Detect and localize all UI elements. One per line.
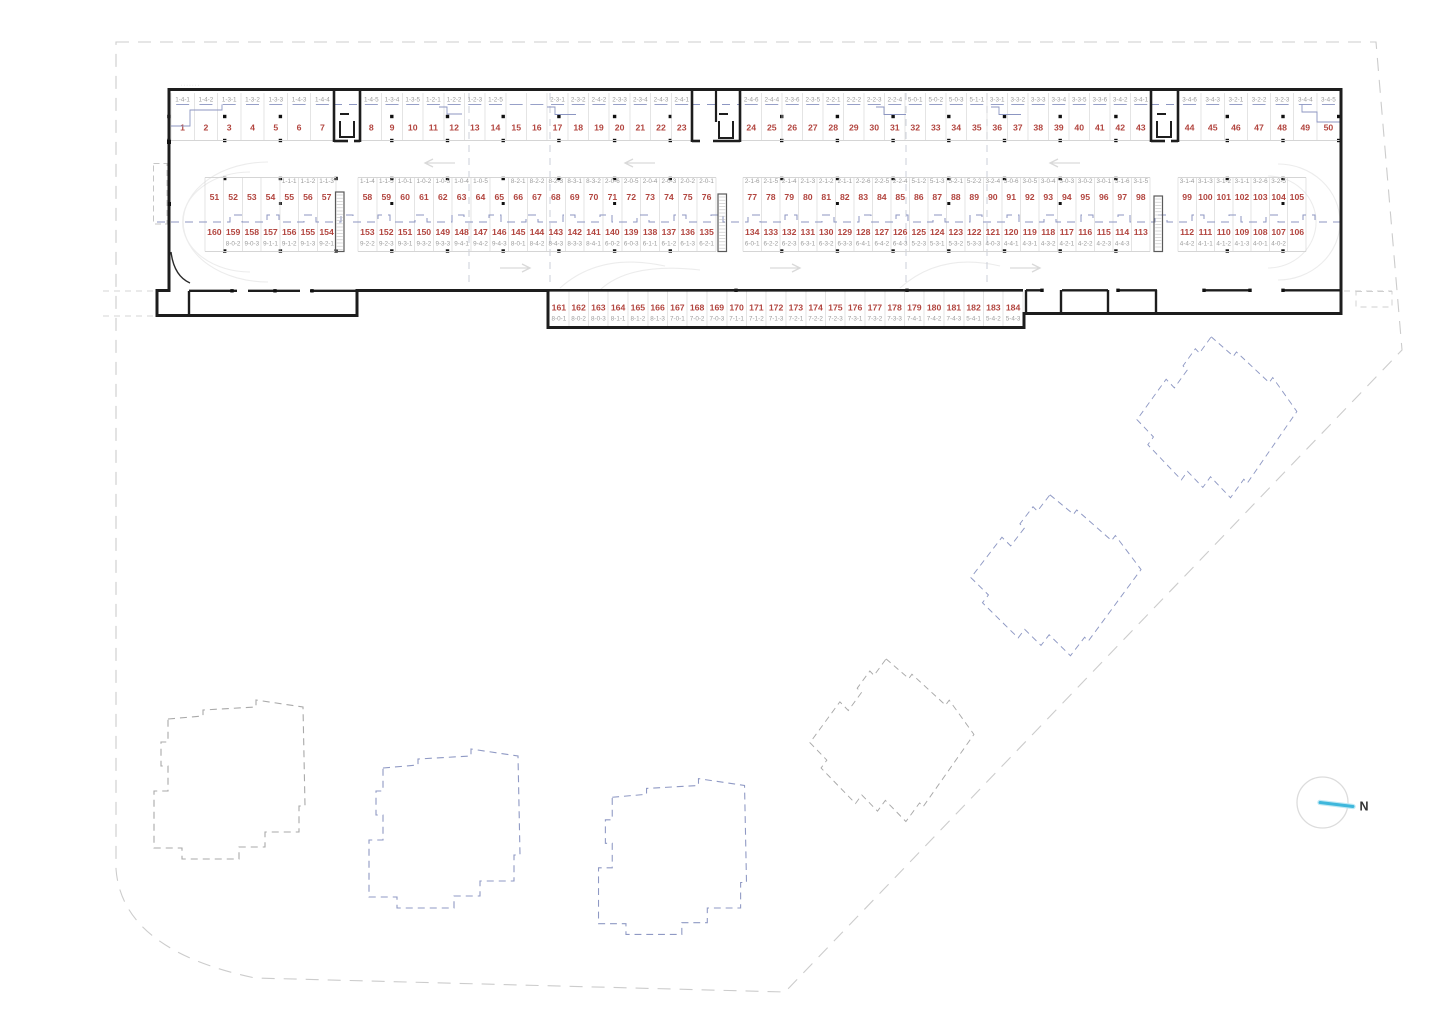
svg-text:1-0-3: 1-0-3	[435, 178, 450, 185]
svg-text:2-0-1: 2-0-1	[699, 178, 714, 185]
svg-text:1-2-1: 1-2-1	[426, 97, 441, 104]
svg-text:2: 2	[203, 123, 208, 133]
svg-text:143: 143	[549, 227, 564, 237]
svg-text:2-1-6: 2-1-6	[745, 178, 760, 185]
svg-text:77: 77	[747, 192, 757, 202]
svg-text:131: 131	[801, 227, 816, 237]
svg-text:1-4-5: 1-4-5	[364, 97, 379, 104]
svg-text:4-1-1: 4-1-1	[1198, 241, 1213, 248]
svg-text:62: 62	[438, 192, 448, 202]
svg-text:8-2-2: 8-2-2	[530, 178, 545, 185]
svg-text:5-2-1: 5-2-1	[948, 178, 963, 185]
svg-text:8-4-3: 8-4-3	[548, 241, 563, 248]
svg-text:168: 168	[690, 303, 705, 313]
svg-text:8-1-3: 8-1-3	[650, 316, 665, 323]
svg-text:1-1-2: 1-1-2	[301, 178, 316, 185]
svg-text:95: 95	[1080, 192, 1090, 202]
svg-text:7-2-3: 7-2-3	[828, 316, 843, 323]
svg-text:8-4-2: 8-4-2	[530, 241, 545, 248]
svg-text:6-1-1: 6-1-1	[643, 241, 658, 248]
svg-text:156: 156	[282, 227, 297, 237]
svg-text:2-1-5: 2-1-5	[763, 178, 778, 185]
svg-text:150: 150	[417, 227, 432, 237]
svg-text:176: 176	[848, 303, 863, 313]
svg-text:161: 161	[552, 303, 567, 313]
svg-text:4-4-3: 4-4-3	[1115, 241, 1130, 248]
svg-text:3-2-4: 3-2-4	[985, 178, 1000, 185]
svg-text:7-0-2: 7-0-2	[690, 316, 705, 323]
svg-text:1: 1	[180, 123, 185, 133]
svg-text:11: 11	[429, 123, 438, 133]
svg-text:139: 139	[624, 227, 639, 237]
svg-text:4-2-2: 4-2-2	[1078, 241, 1093, 248]
svg-text:N: N	[1359, 800, 1368, 814]
svg-text:7-0-1: 7-0-1	[670, 316, 685, 323]
svg-text:4-0-1: 4-0-1	[1253, 241, 1268, 248]
svg-text:3-0-4: 3-0-4	[1041, 178, 1056, 185]
svg-text:3-2-5: 3-2-5	[1271, 178, 1286, 185]
svg-text:6-3-2: 6-3-2	[819, 241, 834, 248]
svg-text:30: 30	[869, 123, 879, 133]
svg-text:63: 63	[457, 192, 467, 202]
svg-text:2-1-2: 2-1-2	[819, 178, 834, 185]
svg-text:1-0-5: 1-0-5	[473, 178, 488, 185]
svg-text:159: 159	[226, 227, 241, 237]
svg-text:6-2-1: 6-2-1	[699, 241, 714, 248]
svg-text:88: 88	[951, 192, 961, 202]
svg-text:2-1-1: 2-1-1	[837, 178, 852, 185]
svg-text:103: 103	[1253, 192, 1268, 202]
svg-text:1-3-1: 1-3-1	[222, 97, 237, 104]
svg-text:9-1-3: 9-1-3	[301, 241, 316, 248]
svg-text:179: 179	[907, 303, 922, 313]
svg-text:162: 162	[571, 303, 586, 313]
svg-text:7-3-1: 7-3-1	[848, 316, 863, 323]
svg-text:9-0-3: 9-0-3	[244, 241, 259, 248]
svg-text:121: 121	[986, 227, 1001, 237]
svg-text:65: 65	[494, 192, 504, 202]
svg-text:7-4-2: 7-4-2	[927, 316, 942, 323]
svg-text:9-3-3: 9-3-3	[435, 241, 450, 248]
svg-text:51: 51	[210, 192, 220, 202]
svg-text:12: 12	[449, 123, 459, 133]
svg-text:39: 39	[1054, 123, 1064, 133]
svg-text:3-4-2: 3-4-2	[1113, 97, 1128, 104]
svg-text:5-0-2: 5-0-2	[928, 97, 943, 104]
svg-text:101: 101	[1216, 192, 1231, 202]
svg-text:71: 71	[608, 192, 618, 202]
svg-text:3-0-5: 3-0-5	[1022, 178, 1037, 185]
svg-text:4-4-1: 4-4-1	[1004, 241, 1019, 248]
svg-text:94: 94	[1062, 192, 1072, 202]
svg-text:180: 180	[927, 303, 942, 313]
svg-text:85: 85	[895, 192, 905, 202]
svg-text:97: 97	[1117, 192, 1127, 202]
svg-text:151: 151	[398, 227, 413, 237]
svg-text:56: 56	[303, 192, 313, 202]
svg-text:175: 175	[828, 303, 843, 313]
svg-text:8-1-2: 8-1-2	[631, 316, 646, 323]
svg-text:107: 107	[1271, 227, 1286, 237]
svg-text:35: 35	[972, 123, 982, 133]
svg-text:2-3-3: 2-3-3	[612, 97, 627, 104]
svg-text:93: 93	[1043, 192, 1053, 202]
svg-text:58: 58	[363, 192, 373, 202]
svg-text:15: 15	[511, 123, 521, 133]
svg-text:46: 46	[1231, 123, 1241, 133]
svg-text:2-1-4: 2-1-4	[782, 178, 797, 185]
svg-text:96: 96	[1099, 192, 1109, 202]
svg-text:8-0-3: 8-0-3	[591, 316, 606, 323]
svg-text:141: 141	[586, 227, 601, 237]
svg-text:1-0-2: 1-0-2	[417, 178, 432, 185]
svg-text:2-2-4: 2-2-4	[887, 97, 902, 104]
svg-text:73: 73	[645, 192, 655, 202]
svg-text:110: 110	[1217, 227, 1231, 237]
svg-text:136: 136	[680, 227, 695, 237]
svg-text:16: 16	[532, 123, 542, 133]
svg-text:89: 89	[969, 192, 979, 202]
svg-text:27: 27	[808, 123, 818, 133]
svg-text:55: 55	[284, 192, 294, 202]
svg-text:119: 119	[1023, 227, 1037, 237]
svg-text:5-4-3: 5-4-3	[1006, 316, 1021, 323]
svg-text:36: 36	[992, 123, 1002, 133]
svg-text:125: 125	[912, 227, 927, 237]
svg-text:149: 149	[436, 227, 451, 237]
svg-text:82: 82	[840, 192, 850, 202]
svg-text:8: 8	[369, 123, 374, 133]
svg-text:81: 81	[821, 192, 831, 202]
svg-text:2-2-1: 2-2-1	[826, 97, 841, 104]
svg-text:173: 173	[789, 303, 804, 313]
svg-text:57: 57	[322, 192, 332, 202]
svg-text:129: 129	[838, 227, 853, 237]
svg-text:7-2-2: 7-2-2	[808, 316, 823, 323]
svg-text:5-3-1: 5-3-1	[930, 241, 945, 248]
svg-text:70: 70	[589, 192, 599, 202]
svg-text:49: 49	[1300, 123, 1310, 133]
svg-text:18: 18	[573, 123, 583, 133]
svg-text:8-0-1: 8-0-1	[511, 241, 526, 248]
svg-text:84: 84	[877, 192, 887, 202]
svg-text:1-0-4: 1-0-4	[454, 178, 469, 185]
svg-text:164: 164	[611, 303, 626, 313]
svg-text:1-4-1: 1-4-1	[175, 97, 190, 104]
svg-text:126: 126	[893, 227, 908, 237]
svg-text:3-1-2: 3-1-2	[1216, 178, 1231, 185]
svg-text:3-1-6: 3-1-6	[1115, 178, 1130, 185]
svg-text:1-4-4: 1-4-4	[315, 97, 330, 104]
svg-text:83: 83	[858, 192, 868, 202]
svg-text:152: 152	[379, 227, 394, 237]
svg-text:8-0-1: 8-0-1	[552, 316, 567, 323]
svg-text:6-2-2: 6-2-2	[763, 241, 778, 248]
svg-text:75: 75	[683, 192, 693, 202]
svg-text:2-4-4: 2-4-4	[764, 97, 779, 104]
svg-text:178: 178	[887, 303, 902, 313]
svg-text:115: 115	[1097, 227, 1111, 237]
svg-text:8-3-2: 8-3-2	[586, 178, 601, 185]
svg-text:21: 21	[635, 123, 645, 133]
svg-text:5-0-1: 5-0-1	[908, 97, 923, 104]
svg-text:2-2-6: 2-2-6	[856, 178, 871, 185]
svg-text:184: 184	[1006, 303, 1021, 313]
svg-text:133: 133	[764, 227, 779, 237]
svg-text:64: 64	[476, 192, 486, 202]
svg-text:111: 111	[1199, 227, 1213, 237]
svg-text:2-2-2: 2-2-2	[846, 97, 861, 104]
svg-text:148: 148	[454, 227, 469, 237]
svg-text:59: 59	[381, 192, 391, 202]
svg-text:1-3-5: 1-3-5	[405, 97, 420, 104]
svg-text:60: 60	[400, 192, 410, 202]
svg-text:134: 134	[745, 227, 760, 237]
svg-text:102: 102	[1235, 192, 1250, 202]
svg-text:34: 34	[951, 123, 961, 133]
svg-text:3-1-1: 3-1-1	[1235, 178, 1250, 185]
svg-text:7: 7	[320, 123, 325, 133]
svg-text:6-4-1: 6-4-1	[856, 241, 871, 248]
svg-text:74: 74	[664, 192, 674, 202]
svg-text:100: 100	[1198, 192, 1213, 202]
svg-text:123: 123	[949, 227, 964, 237]
svg-text:127: 127	[875, 227, 890, 237]
svg-text:171: 171	[749, 303, 764, 313]
svg-text:8-1-1: 8-1-1	[611, 316, 626, 323]
svg-text:124: 124	[930, 227, 945, 237]
svg-text:9-3-2: 9-3-2	[417, 241, 432, 248]
svg-text:177: 177	[868, 303, 883, 313]
svg-text:6-0-1: 6-0-1	[745, 241, 760, 248]
svg-text:3-2-6: 3-2-6	[1253, 178, 1268, 185]
svg-text:54: 54	[266, 192, 276, 202]
svg-text:2-3-2: 2-3-2	[571, 97, 586, 104]
svg-text:9-3-1: 9-3-1	[398, 241, 413, 248]
svg-text:2-4-6: 2-4-6	[744, 97, 759, 104]
svg-text:174: 174	[808, 303, 823, 313]
svg-text:47: 47	[1254, 123, 1264, 133]
svg-text:8-3-3: 8-3-3	[567, 241, 582, 248]
svg-text:91: 91	[1006, 192, 1016, 202]
svg-text:92: 92	[1025, 192, 1035, 202]
svg-text:2-2-4: 2-2-4	[893, 178, 908, 185]
svg-text:99: 99	[1182, 192, 1192, 202]
svg-text:8-4-1: 8-4-1	[586, 241, 601, 248]
svg-text:6-1-2: 6-1-2	[662, 241, 677, 248]
svg-text:3-3-5: 3-3-5	[1072, 97, 1087, 104]
svg-text:14: 14	[491, 123, 501, 133]
svg-text:7-4-3: 7-4-3	[947, 316, 962, 323]
svg-text:116: 116	[1078, 227, 1092, 237]
svg-text:8-2-1: 8-2-1	[511, 178, 526, 185]
svg-text:3-4-5: 3-4-5	[1321, 97, 1336, 104]
svg-text:6-2-3: 6-2-3	[782, 241, 797, 248]
svg-text:3-4-3: 3-4-3	[1205, 97, 1220, 104]
svg-text:128: 128	[856, 227, 871, 237]
svg-text:158: 158	[245, 227, 260, 237]
svg-text:157: 157	[263, 227, 278, 237]
svg-text:3-4-1: 3-4-1	[1133, 97, 1148, 104]
svg-text:2-0-3: 2-0-3	[662, 178, 677, 185]
svg-text:1-2-2: 1-2-2	[447, 97, 462, 104]
svg-text:9-4-2: 9-4-2	[473, 241, 488, 248]
svg-text:5-2-3: 5-2-3	[911, 241, 926, 248]
svg-text:109: 109	[1235, 227, 1250, 237]
svg-text:3-0-1: 3-0-1	[1096, 178, 1111, 185]
svg-text:68: 68	[551, 192, 561, 202]
svg-text:44: 44	[1185, 123, 1195, 133]
svg-text:9-4-3: 9-4-3	[492, 241, 507, 248]
svg-text:2-4-2: 2-4-2	[592, 97, 607, 104]
svg-text:31: 31	[890, 123, 900, 133]
svg-text:147: 147	[473, 227, 488, 237]
svg-text:170: 170	[729, 303, 744, 313]
svg-text:42: 42	[1115, 123, 1125, 133]
svg-text:9-1-1: 9-1-1	[263, 241, 278, 248]
svg-text:3-0-6: 3-0-6	[1004, 178, 1019, 185]
svg-text:3: 3	[227, 123, 232, 133]
svg-text:3-2-1: 3-2-1	[1229, 97, 1244, 104]
svg-text:2-4-3: 2-4-3	[654, 97, 669, 104]
svg-text:5-2-2: 5-2-2	[967, 178, 982, 185]
svg-text:61: 61	[419, 192, 429, 202]
svg-text:. . . . . . .: . . . . . . .	[181, 82, 200, 88]
svg-text:5-3-3: 5-3-3	[967, 241, 982, 248]
svg-text:4-3-2: 4-3-2	[1041, 241, 1056, 248]
svg-text:165: 165	[631, 303, 646, 313]
svg-text:69: 69	[570, 192, 580, 202]
svg-text:117: 117	[1060, 227, 1074, 237]
svg-text:67: 67	[532, 192, 542, 202]
svg-text:76: 76	[702, 192, 712, 202]
svg-text:5-4-1: 5-4-1	[966, 316, 981, 323]
svg-text:142: 142	[567, 227, 582, 237]
svg-text:52: 52	[228, 192, 238, 202]
svg-text:78: 78	[766, 192, 776, 202]
svg-text:3-2-2: 3-2-2	[1252, 97, 1267, 104]
svg-text:32: 32	[910, 123, 920, 133]
svg-text:8-0-2: 8-0-2	[571, 316, 586, 323]
svg-text:4-2-3: 4-2-3	[1096, 241, 1111, 248]
svg-text:3-0-3: 3-0-3	[1059, 178, 1074, 185]
svg-text:169: 169	[710, 303, 725, 313]
svg-text:1-4-2: 1-4-2	[199, 97, 214, 104]
svg-text:7-0-3: 7-0-3	[710, 316, 725, 323]
svg-text:113: 113	[1134, 227, 1148, 237]
svg-text:5-1-1: 5-1-1	[969, 97, 984, 104]
svg-text:6-1-3: 6-1-3	[680, 241, 695, 248]
svg-text:80: 80	[803, 192, 813, 202]
svg-text:7-1-1: 7-1-1	[729, 316, 744, 323]
svg-text:1-1-4: 1-1-4	[360, 178, 375, 185]
svg-text:3-2-3: 3-2-3	[1275, 97, 1290, 104]
svg-text:5-1-3: 5-1-3	[930, 178, 945, 185]
svg-text:3-3-6: 3-3-6	[1092, 97, 1107, 104]
svg-text:7-2-1: 7-2-1	[789, 316, 804, 323]
svg-text:1-0-1: 1-0-1	[398, 178, 413, 185]
svg-text:72: 72	[626, 192, 636, 202]
svg-text:50: 50	[1324, 123, 1334, 133]
svg-text:33: 33	[931, 123, 941, 133]
svg-text:1-3-2: 1-3-2	[245, 97, 260, 104]
svg-text:2-2-3: 2-2-3	[867, 97, 882, 104]
svg-text:1-1-1: 1-1-1	[282, 178, 297, 185]
svg-text:1-4-3: 1-4-3	[292, 97, 307, 104]
svg-text:53: 53	[247, 192, 257, 202]
svg-text:5-0-3: 5-0-3	[949, 97, 964, 104]
svg-text:6-0-2: 6-0-2	[605, 241, 620, 248]
svg-text:2-0-6: 2-0-6	[605, 178, 620, 185]
svg-text:4-2-1: 4-2-1	[1059, 241, 1074, 248]
svg-text:114: 114	[1115, 227, 1129, 237]
svg-text:45: 45	[1208, 123, 1218, 133]
svg-text:5: 5	[273, 123, 278, 133]
svg-text:154: 154	[319, 227, 334, 237]
svg-text:145: 145	[511, 227, 526, 237]
svg-text:9-2-1: 9-2-1	[319, 241, 334, 248]
svg-text:6-4-3: 6-4-3	[893, 241, 908, 248]
svg-text:2-2-5: 2-2-5	[874, 178, 889, 185]
svg-text:4-4-2: 4-4-2	[1180, 241, 1195, 248]
svg-text:2-1-3: 2-1-3	[800, 178, 815, 185]
svg-text:3-4-6: 3-4-6	[1182, 97, 1197, 104]
svg-text:9-2-2: 9-2-2	[360, 241, 375, 248]
svg-text:104: 104	[1271, 192, 1286, 202]
svg-text:182: 182	[966, 303, 981, 313]
svg-text:9-2-3: 9-2-3	[379, 241, 394, 248]
svg-text:26: 26	[787, 123, 797, 133]
svg-text:106: 106	[1290, 227, 1305, 237]
svg-text:137: 137	[662, 227, 677, 237]
svg-text:5-1-2: 5-1-2	[911, 178, 926, 185]
svg-text:1-3-3: 1-3-3	[268, 97, 283, 104]
svg-text:3-3-1: 3-3-1	[990, 97, 1005, 104]
svg-text:1-2-5: 1-2-5	[488, 97, 503, 104]
svg-text:108: 108	[1253, 227, 1268, 237]
svg-text:5-4-2: 5-4-2	[986, 316, 1001, 323]
svg-text:48: 48	[1277, 123, 1287, 133]
svg-text:112: 112	[1180, 227, 1194, 237]
svg-text:9: 9	[390, 123, 395, 133]
svg-text:163: 163	[591, 303, 606, 313]
svg-text:3-1-3: 3-1-3	[1198, 178, 1213, 185]
svg-text:3-1-4: 3-1-4	[1180, 178, 1195, 185]
svg-text:7-3-3: 7-3-3	[887, 316, 902, 323]
svg-text:79: 79	[784, 192, 794, 202]
svg-text:4-0-3: 4-0-3	[985, 241, 1000, 248]
svg-text:4: 4	[250, 123, 255, 133]
svg-text:2-3-4: 2-3-4	[633, 97, 648, 104]
svg-text:7-1-2: 7-1-2	[749, 316, 764, 323]
svg-text:19: 19	[594, 123, 604, 133]
svg-text:98: 98	[1136, 192, 1146, 202]
svg-text:86: 86	[914, 192, 924, 202]
svg-text:38: 38	[1033, 123, 1043, 133]
svg-text:1-2-3: 1-2-3	[467, 97, 482, 104]
svg-text:66: 66	[513, 192, 523, 202]
svg-text:43: 43	[1136, 123, 1146, 133]
svg-text:20: 20	[615, 123, 625, 133]
svg-text:135: 135	[699, 227, 714, 237]
svg-text:140: 140	[605, 227, 620, 237]
svg-text:22: 22	[656, 123, 666, 133]
svg-text:181: 181	[947, 303, 962, 313]
svg-text:138: 138	[643, 227, 658, 237]
svg-text:183: 183	[986, 303, 1001, 313]
svg-text:2-3-5: 2-3-5	[805, 97, 820, 104]
svg-text:120: 120	[1004, 227, 1019, 237]
